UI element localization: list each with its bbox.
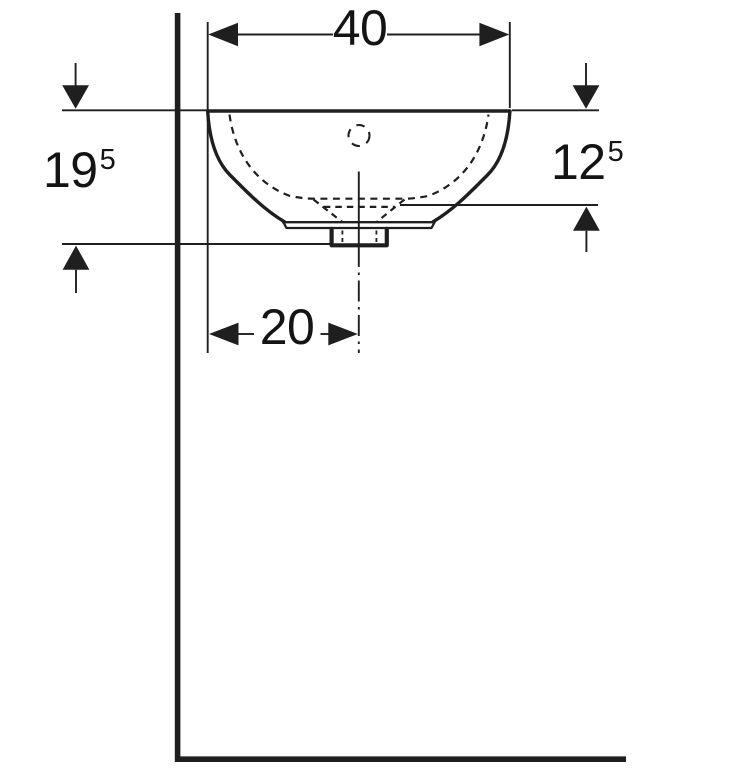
dim125-arrow-down-icon xyxy=(573,85,600,109)
overflow-hole-circle xyxy=(349,125,370,146)
dim-value-right-depth: 12 xyxy=(551,137,606,187)
dim-label-top-width: 40 xyxy=(333,3,388,53)
basin-outer-left xyxy=(208,112,285,222)
sump-funnel-left xyxy=(314,200,343,222)
dim-label-left-height: 19 5 xyxy=(43,145,115,195)
dim40-arrow-right-icon xyxy=(479,23,509,46)
dim-superscript-right-depth: 5 xyxy=(608,138,624,167)
dim-value-top-width: 40 xyxy=(333,3,388,53)
dim-value-left-height: 19 xyxy=(43,145,98,195)
drawing-canvas xyxy=(0,0,729,781)
dim-label-bottom-width: 20 xyxy=(260,302,315,352)
dim-value-bottom-width: 20 xyxy=(260,302,315,352)
dim125-arrow-up-icon xyxy=(573,207,600,231)
technical-drawing: 40 19 5 12 5 20 xyxy=(0,0,729,781)
dim-label-right-depth: 12 5 xyxy=(551,137,623,187)
dim20-arrow-left-icon xyxy=(209,323,239,346)
dim195-arrow-down-icon xyxy=(62,85,89,109)
dim20-arrow-right-icon xyxy=(328,323,358,346)
dim195-arrow-up-icon xyxy=(63,246,90,270)
sump-funnel-right xyxy=(377,200,405,222)
dim40-arrow-left-icon xyxy=(208,23,238,46)
dim-superscript-left-height: 5 xyxy=(100,146,116,175)
